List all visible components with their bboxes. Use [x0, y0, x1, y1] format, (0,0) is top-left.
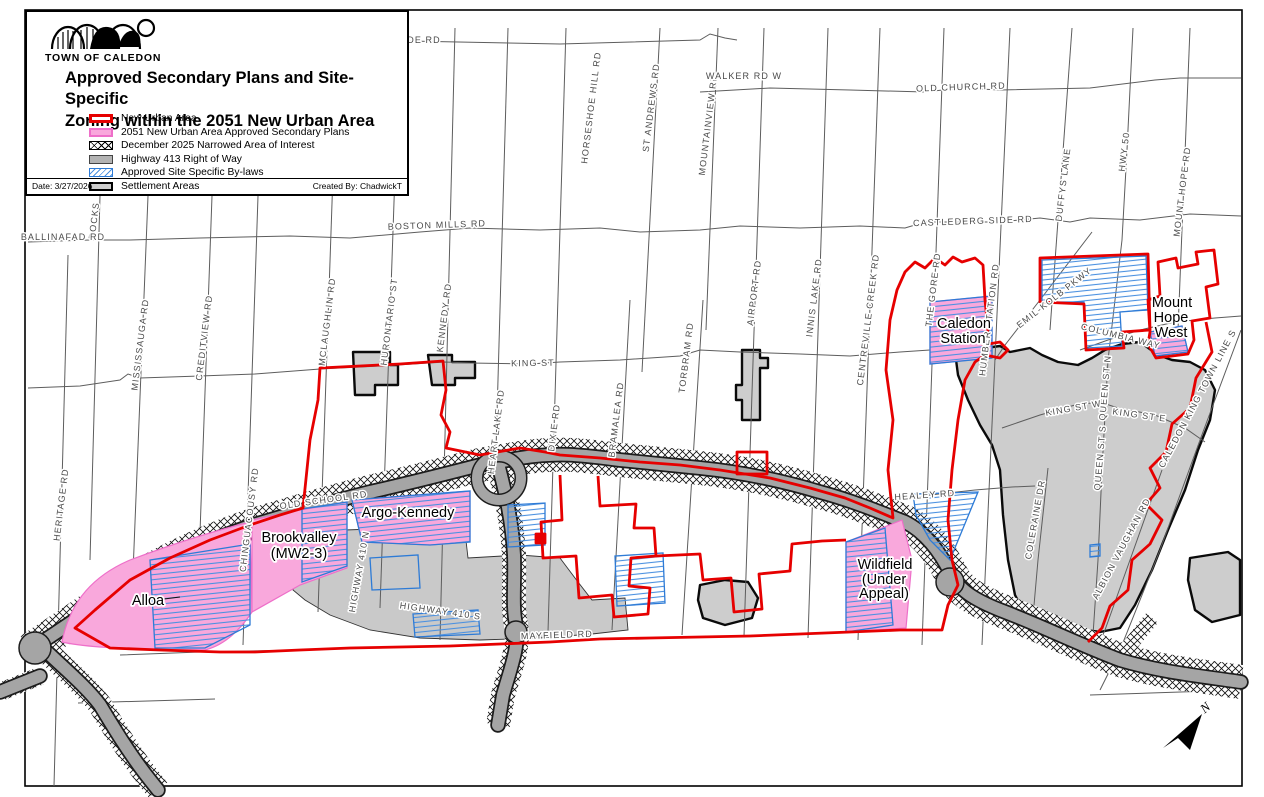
area-label-brookvalley: Brookvalley [262, 530, 338, 546]
road-label: WALKER RD W [706, 71, 782, 81]
map-title-line1: Approved Secondary Plans and Site-Specif… [65, 68, 407, 111]
legend-label: Approved Site Specific By-laws [121, 167, 264, 178]
map-date: Date: 3/27/2026 [32, 181, 93, 191]
legend-item-secondary-plans: 2051 New Urban Area Approved Secondary P… [89, 126, 349, 140]
road-label: DE RD [407, 35, 441, 45]
legend-item-highway-413: Highway 413 Right of Way [89, 153, 349, 167]
legend-swatch-narrowed-area [89, 141, 113, 150]
area-label-mount-hope-west: Mount [1152, 295, 1192, 311]
map-page: HERITAGE RD ROCKS MISSISSAUGA RD CREDITV… [0, 0, 1264, 797]
logo-text: TOWN OF CALEDON [45, 52, 161, 64]
legend-label: New Urban Area [121, 113, 197, 124]
legend-label: December 2025 Narrowed Area of Interest [121, 140, 314, 151]
road-label: KING ST [511, 358, 555, 369]
area-label-alloa: Alloa [132, 593, 165, 609]
road-label: BALLINAFAD RD [21, 232, 105, 242]
legend-swatch-secondary-plans [89, 128, 113, 137]
area-label-argo-kennedy: Argo-Kennedy [362, 505, 455, 521]
legend-item-narrowed-area: December 2025 Narrowed Area of Interest [89, 139, 349, 153]
legend-label: Highway 413 Right of Way [121, 154, 242, 165]
legend-box: TOWN OF CALEDON Approved Secondary Plans… [25, 10, 409, 196]
town-of-caledon-logo [45, 17, 165, 53]
area-label-caledon-station: Caledon [937, 316, 991, 332]
area-label-mount-hope-west-3: West [1155, 325, 1188, 341]
area-label-mount-hope-west-2: Hope [1154, 310, 1189, 326]
legend-swatch-highway-413 [89, 155, 113, 164]
map-author: Created By: ChadwickT [313, 181, 402, 191]
settlement-small-5 [1188, 552, 1240, 622]
settlement-small-4 [698, 580, 758, 625]
legend-swatch-site-specific [89, 168, 113, 177]
legend-label: 2051 New Urban Area Approved Secondary P… [121, 127, 349, 138]
legend-swatch-new-urban-area [89, 114, 113, 123]
area-label-caledon-station-2: Station [940, 331, 985, 347]
area-label-wildfield: Wildfield [858, 557, 913, 573]
area-label-brookvalley-2: (MW2-3) [271, 546, 327, 562]
legend-footer: Date: 3/27/2026 Created By: ChadwickT [27, 178, 407, 194]
legend-item-new-urban-area: New Urban Area [89, 112, 349, 126]
area-label-wildfield-3: Appeal) [859, 586, 909, 602]
